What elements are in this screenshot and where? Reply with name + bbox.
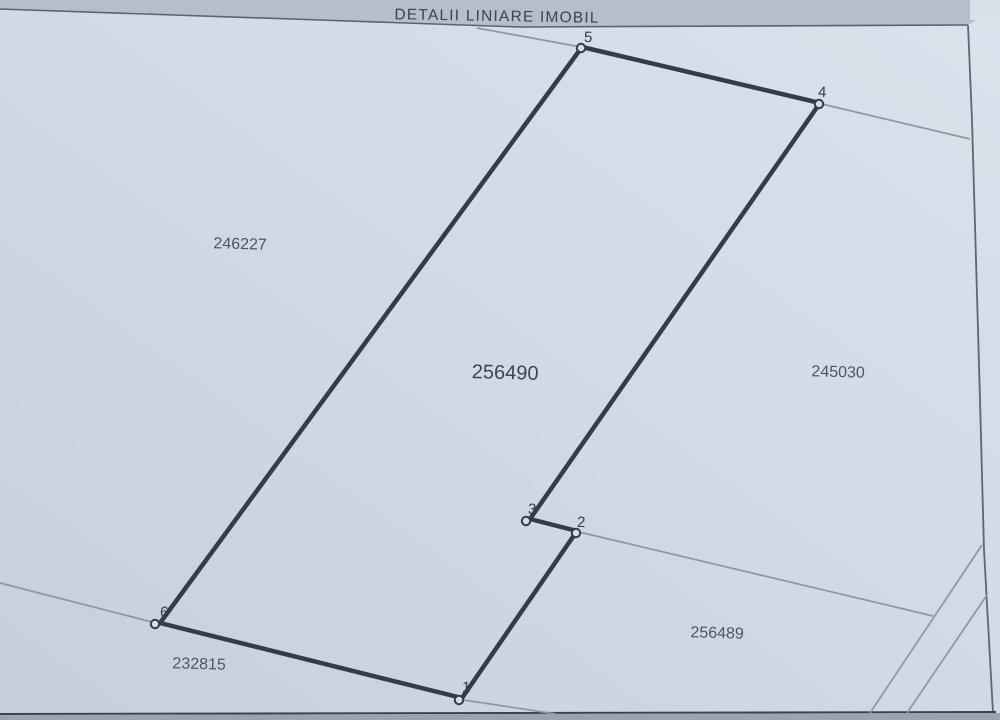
- vertex-label-2: 2: [577, 514, 586, 531]
- vertex-marker-1: [455, 696, 463, 704]
- page-background: [0, 0, 1000, 720]
- vertex-label-3: 3: [528, 501, 537, 518]
- parcel-label-right: 245030: [811, 363, 865, 381]
- page-title: DETALII LINIARE IMOBIL: [394, 6, 600, 27]
- vertex-marker-4: [815, 100, 823, 108]
- scanned-cadastral-sketch: DETALII LINIARE IMOBIL 1 2: [0, 0, 1000, 720]
- vertex-label-1: 1: [462, 679, 471, 696]
- vertex-marker-3: [522, 517, 530, 525]
- page-corner: [970, 0, 1000, 20]
- cadastral-map-canvas: DETALII LINIARE IMOBIL 1 2: [0, 0, 1000, 720]
- vertex-marker-6: [151, 620, 159, 628]
- parcel-label-bottom-right: 256489: [690, 624, 744, 642]
- vertex-label-5: 5: [584, 29, 593, 46]
- parcel-label-bottom-left: 232815: [172, 655, 226, 673]
- vertex-label-4: 4: [818, 84, 827, 101]
- vertex-label-6: 6: [160, 604, 169, 621]
- parcel-label-main: 256490: [472, 361, 539, 385]
- parcel-label-left: 246227: [213, 235, 267, 253]
